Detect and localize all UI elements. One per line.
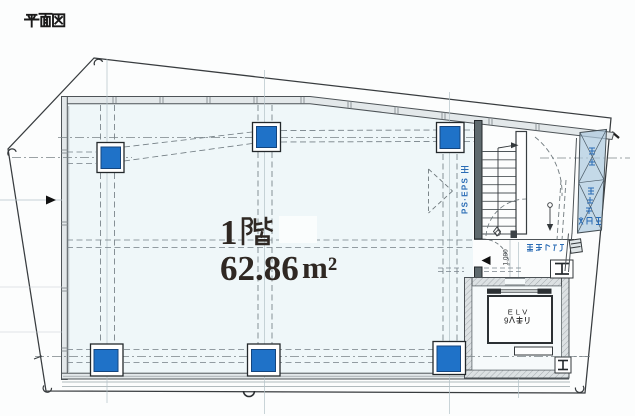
svg-text:9: 9 (504, 317, 509, 326)
svg-text:1: 1 (220, 213, 238, 252)
svg-text:PS·EPS: PS·EPS (461, 177, 470, 214)
svg-text:62.86: 62.86 (220, 249, 299, 288)
svg-text:ELV: ELV (508, 308, 531, 317)
svg-text:1,080: 1,080 (503, 249, 510, 266)
svg-text:m²: m² (302, 250, 337, 285)
